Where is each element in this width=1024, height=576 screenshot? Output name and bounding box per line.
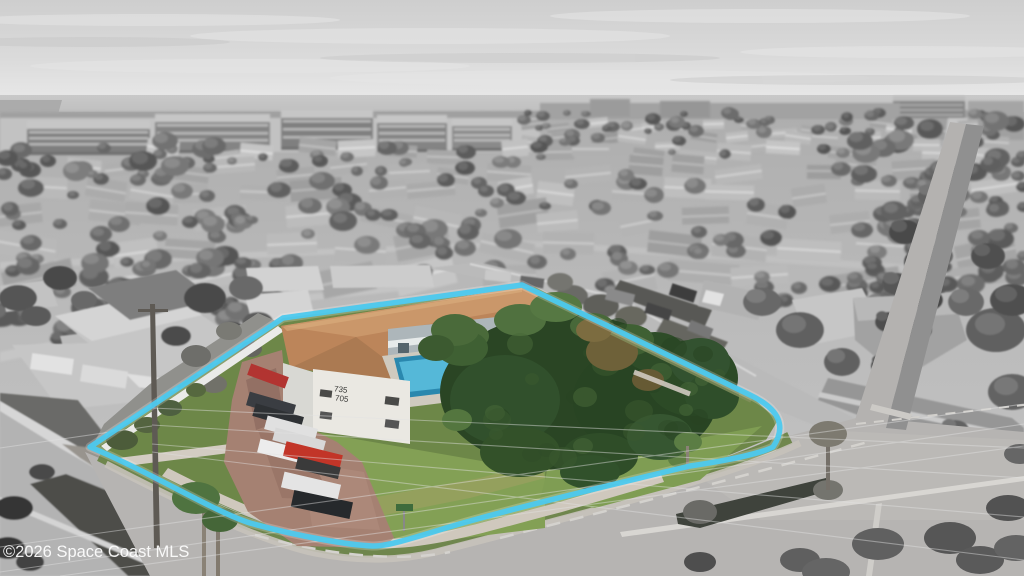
svg-text:705: 705 <box>335 393 350 404</box>
svg-text:©2026 Space Coast MLS: ©2026 Space Coast MLS <box>3 543 189 561</box>
